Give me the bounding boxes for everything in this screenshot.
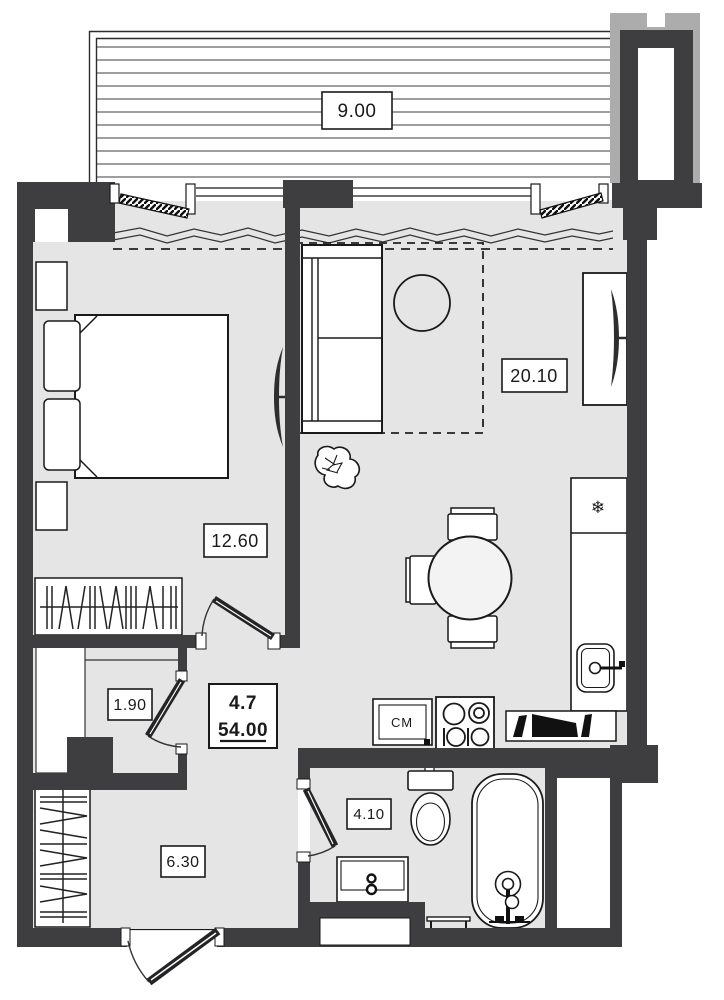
toilet [408, 766, 453, 845]
wall-niche [320, 918, 410, 945]
floor-plan: ❄ СМ [0, 0, 724, 1000]
apartment-total-area: 54.00 [218, 720, 268, 741]
door-entrance [121, 928, 224, 982]
wardrobe-entry [35, 785, 90, 927]
bed [75, 315, 228, 478]
fridge-icon: ❄ [591, 498, 605, 517]
structural-column [610, 8, 702, 208]
apartment-info-box: 4.7 54.00 [209, 684, 277, 748]
sofa [302, 245, 382, 433]
wardrobe-bedroom [35, 578, 182, 635]
svg-text:20.10: 20.10 [510, 366, 558, 386]
shaft [557, 778, 610, 928]
dining-table [429, 537, 512, 620]
label-closet: 1.90 [108, 689, 152, 720]
svg-text:12.60: 12.60 [211, 531, 259, 551]
bathtub [472, 774, 543, 928]
label-hall: 6.30 [161, 846, 205, 877]
svg-text:9.00: 9.00 [338, 101, 377, 122]
nightstand [36, 262, 67, 310]
washing-machine-label: СМ [391, 715, 413, 730]
svg-text:6.30: 6.30 [166, 854, 199, 871]
chair [448, 508, 497, 540]
pillow [44, 321, 80, 391]
label-living: 20.10 [502, 359, 567, 392]
vanity-sink [337, 857, 408, 902]
pillow [44, 399, 80, 470]
wall-niche [35, 209, 68, 242]
svg-text:4.10: 4.10 [353, 806, 384, 823]
label-bedroom: 12.60 [204, 524, 267, 557]
shaft [638, 48, 674, 180]
shoe-cabinet [506, 711, 616, 741]
label-bathroom: 4.10 [347, 799, 391, 829]
apartment-number: 4.7 [229, 693, 257, 714]
chair [448, 616, 497, 648]
stove [436, 697, 494, 749]
label-balcony: 9.00 [322, 92, 392, 129]
washing-machine: СМ [373, 699, 432, 745]
svg-text:1.90: 1.90 [113, 697, 146, 714]
nightstand [36, 482, 67, 530]
